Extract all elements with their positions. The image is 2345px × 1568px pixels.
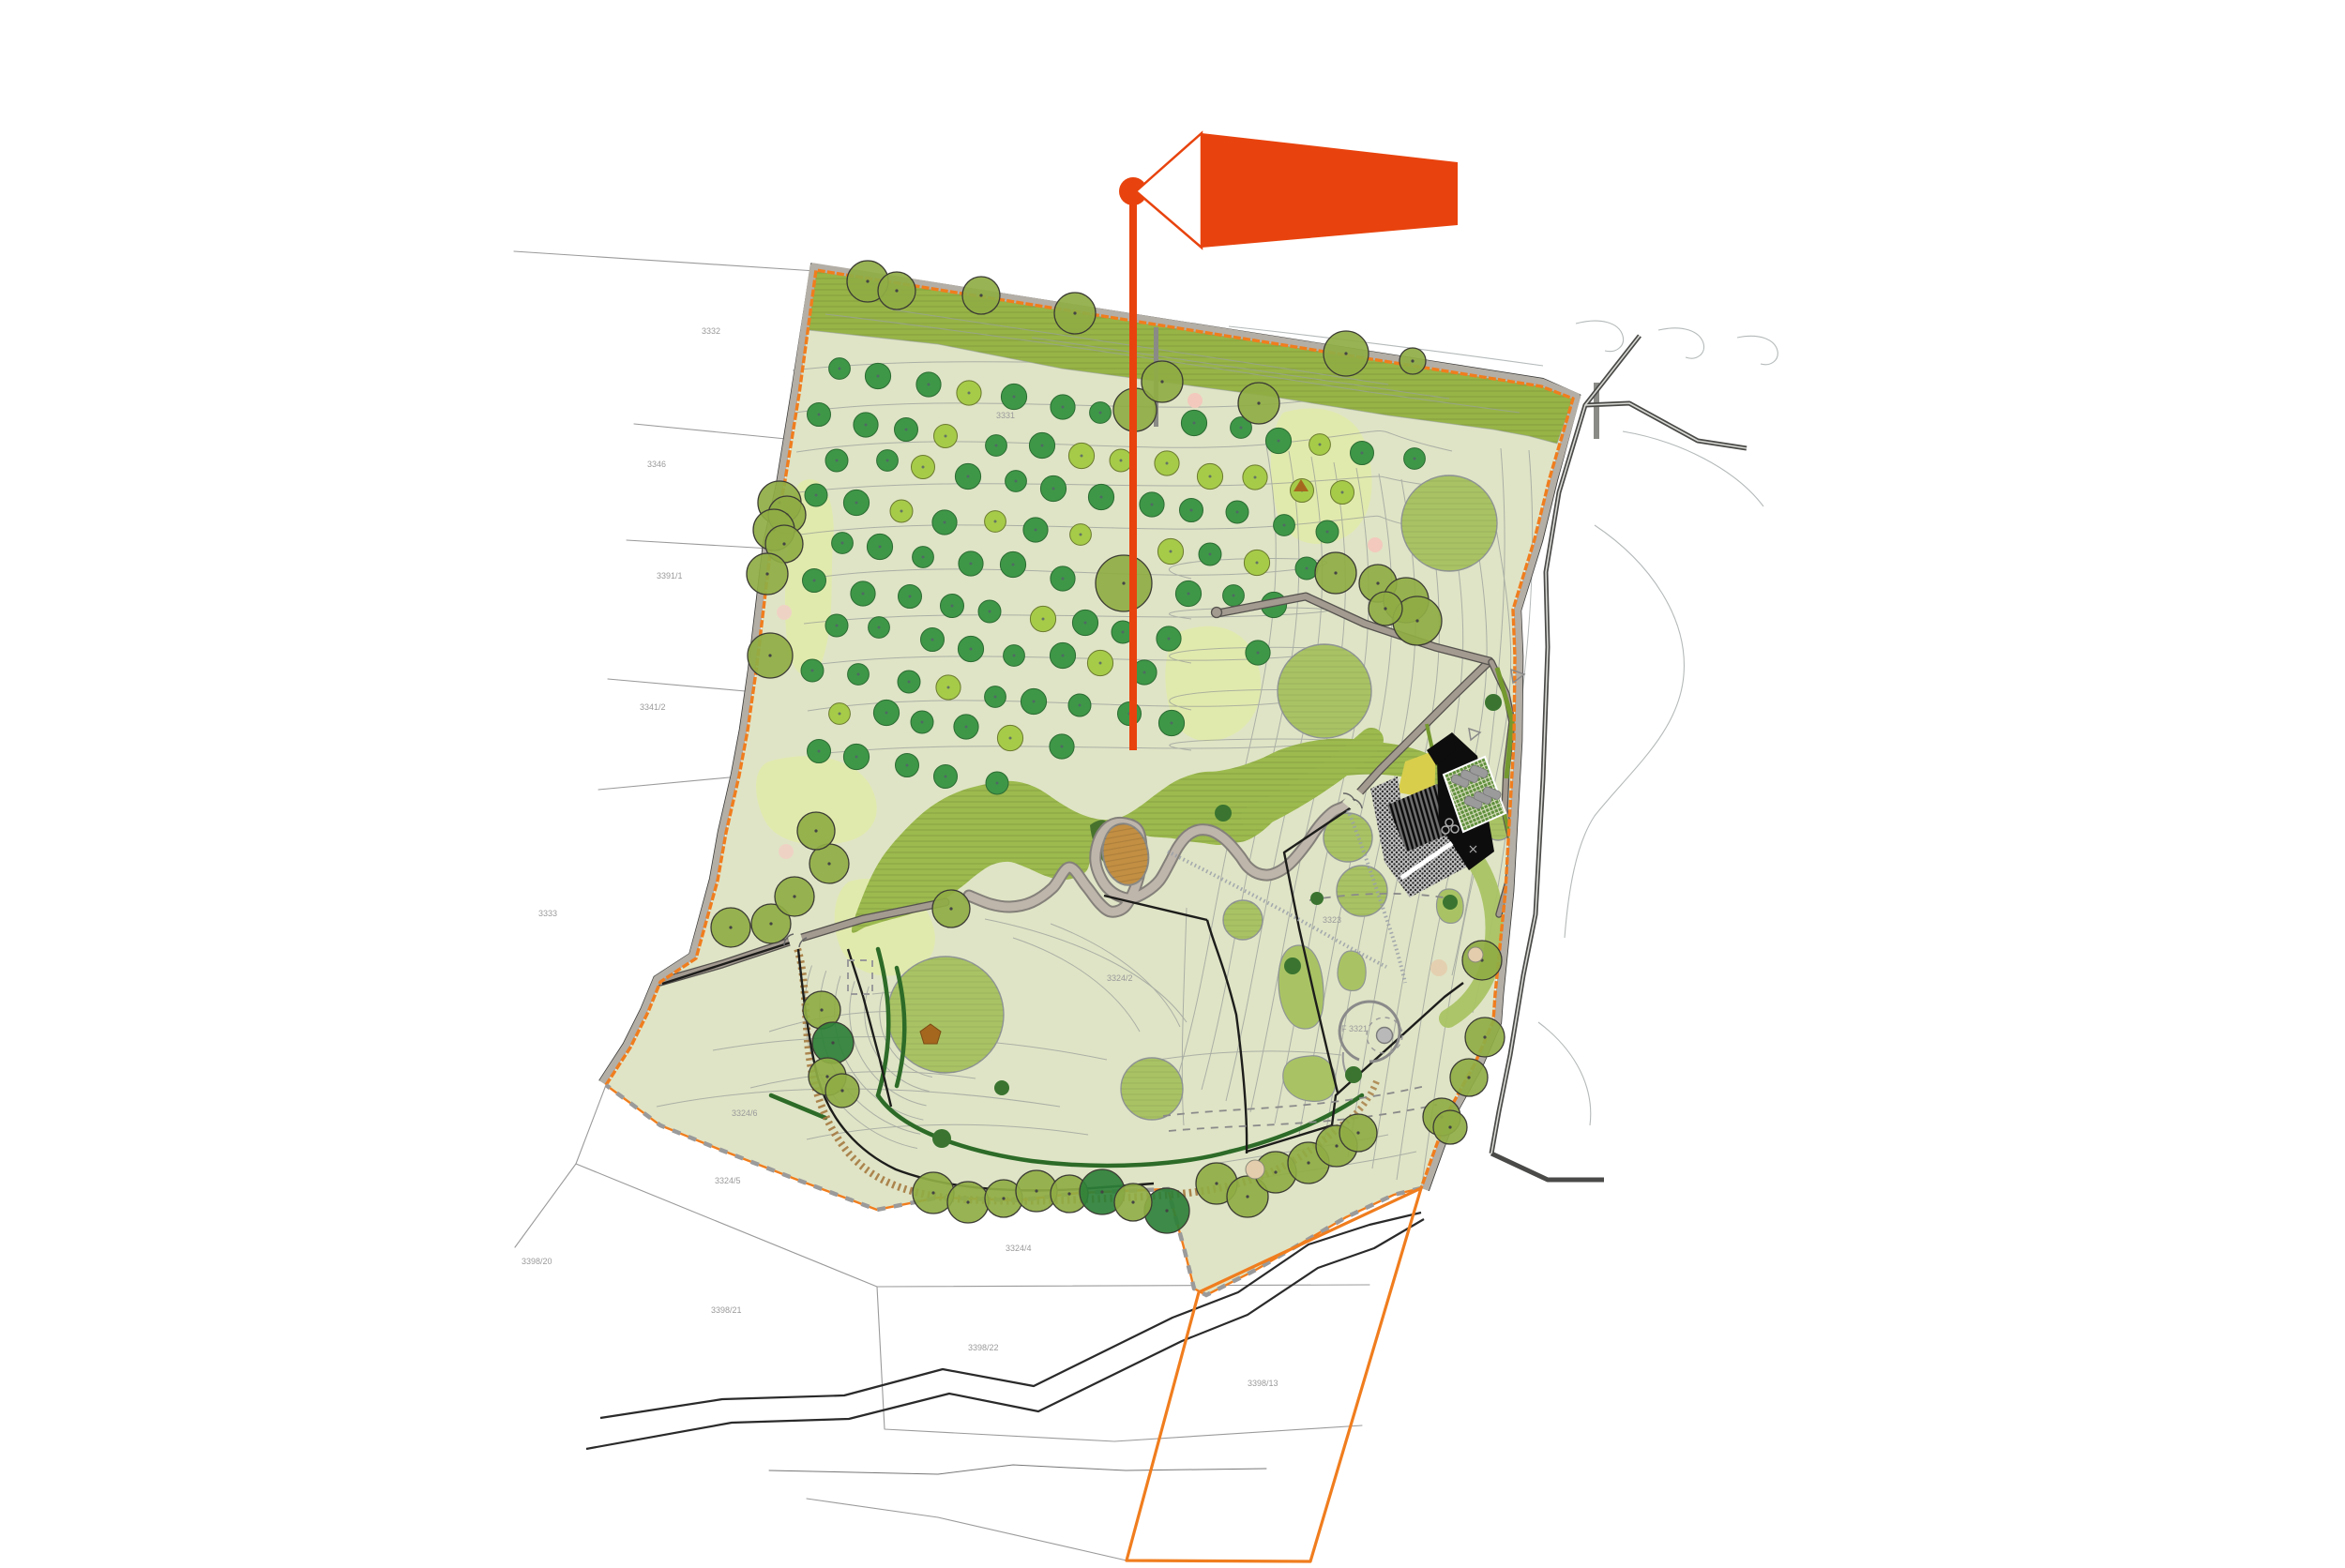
svg-text:3398/21: 3398/21 bbox=[711, 1305, 742, 1315]
svg-text:3324/2: 3324/2 bbox=[1107, 973, 1133, 983]
svg-text:3332: 3332 bbox=[702, 326, 720, 336]
svg-text:3398/22: 3398/22 bbox=[968, 1343, 999, 1352]
svg-text:3324/4: 3324/4 bbox=[1006, 1244, 1032, 1253]
svg-text:3324/6: 3324/6 bbox=[732, 1108, 758, 1118]
svg-text:3333: 3333 bbox=[538, 909, 557, 918]
svg-text:3323: 3323 bbox=[1323, 915, 1341, 925]
svg-text:3398/20: 3398/20 bbox=[522, 1257, 552, 1266]
svg-text:3341/2: 3341/2 bbox=[640, 702, 666, 712]
svg-text:3398/13: 3398/13 bbox=[1248, 1379, 1278, 1388]
svg-text:F 3321: F 3321 bbox=[1341, 1024, 1368, 1033]
svg-text:3346: 3346 bbox=[647, 460, 666, 469]
svg-text:3331: 3331 bbox=[996, 411, 1015, 420]
svg-text:3391/1: 3391/1 bbox=[657, 571, 683, 580]
svg-text:3324/5: 3324/5 bbox=[715, 1176, 741, 1185]
